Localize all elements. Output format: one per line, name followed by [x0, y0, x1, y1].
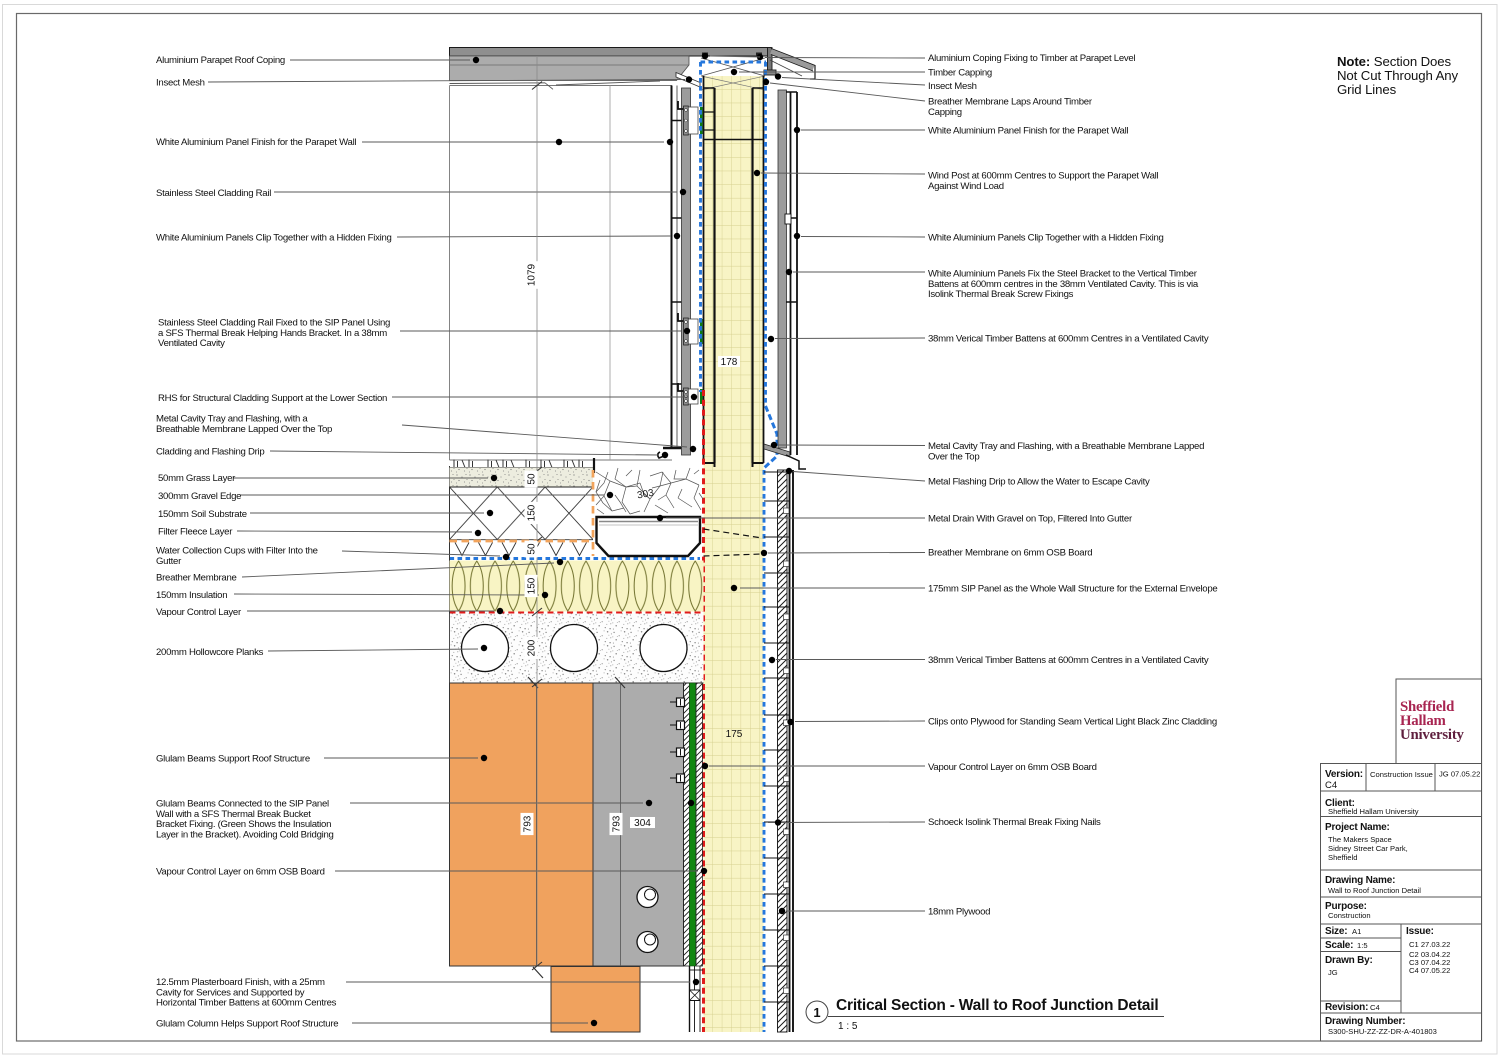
svg-text:38mm Verical Timber Battens at: 38mm Verical Timber Battens at 600mm Cen… [928, 655, 1209, 666]
svg-text:175mm SIP Panel as the Whole W: 175mm SIP Panel as the Whole Wall Struct… [928, 584, 1217, 595]
svg-text:304: 304 [634, 818, 651, 829]
svg-text:1: 1 [813, 1005, 820, 1020]
svg-text:150mm Insulation: 150mm Insulation [156, 590, 227, 601]
svg-text:Metal Drain With Gravel on Top: Metal Drain With Gravel on Top, Filtered… [928, 514, 1133, 525]
svg-text:Capping: Capping [928, 107, 962, 118]
svg-text:Over the Top: Over the Top [928, 451, 979, 462]
svg-text:793: 793 [523, 815, 534, 832]
svg-text:Not Cut Through Any: Not Cut Through Any [1337, 68, 1459, 83]
svg-text:White Aluminium Panel Finish f: White Aluminium Panel Finish for the Par… [928, 126, 1128, 137]
svg-text:C4: C4 [1370, 1003, 1380, 1012]
svg-text:Ventilated Cavity: Ventilated Cavity [158, 338, 225, 349]
svg-text:University: University [1400, 727, 1465, 743]
svg-text:C1 27.03.22: C1 27.03.22 [1409, 940, 1450, 949]
svg-text:1:5: 1:5 [1357, 941, 1368, 950]
svg-text:Construction Issue: Construction Issue [1370, 770, 1433, 779]
svg-text:Breather Membrane on 6mm OSB B: Breather Membrane on 6mm OSB Board [928, 548, 1092, 559]
svg-text:Wall to Roof Junction Detail: Wall to Roof Junction Detail [1328, 886, 1421, 895]
svg-text:Version:: Version: [1325, 769, 1363, 780]
svg-text:Grid Lines: Grid Lines [1337, 82, 1397, 97]
svg-text:Insect Mesh: Insect Mesh [156, 78, 205, 89]
svg-text:Vapour Control Layer: Vapour Control Layer [156, 607, 242, 618]
svg-text:793: 793 [612, 815, 623, 832]
svg-text:Aluminium Parapet Roof Coping: Aluminium Parapet Roof Coping [156, 55, 285, 66]
svg-text:A1: A1 [1352, 927, 1361, 936]
svg-text:Sidney Street Car Park,: Sidney Street Car Park, [1328, 844, 1408, 853]
svg-text:Stainless Steel Cladding Rail: Stainless Steel Cladding Rail [156, 188, 271, 199]
svg-text:Issue:: Issue: [1406, 926, 1434, 937]
svg-text:Schoeck Isolink Thermal Break: Schoeck Isolink Thermal Break Fixing Nai… [928, 817, 1101, 828]
svg-text:Filter Fleece Layer: Filter Fleece Layer [158, 527, 233, 538]
svg-text:50: 50 [527, 473, 538, 485]
svg-text:Glulam Column Helps Support Ro: Glulam Column Helps Support Roof Structu… [156, 1019, 338, 1030]
svg-text:Isolink Thermal Break Screw Fi: Isolink Thermal Break Screw Fixings [928, 289, 1074, 300]
svg-text:Glulam Beams Support Roof Stru: Glulam Beams Support Roof Structure [156, 754, 310, 765]
svg-text:300mm Gravel Edge: 300mm Gravel Edge [158, 491, 241, 502]
svg-text:C4 07.05.22: C4 07.05.22 [1409, 966, 1450, 975]
svg-text:38mm Verical Timber Battens at: 38mm Verical Timber Battens at 600mm Cen… [928, 334, 1209, 345]
svg-text:50: 50 [527, 543, 538, 555]
svg-text:Vapour Control Layer on 6mm OS: Vapour Control Layer on 6mm OSB Board [156, 867, 325, 878]
svg-text:Project Name:: Project Name: [1325, 822, 1390, 833]
svg-text:Drawing Number:: Drawing Number: [1325, 1016, 1405, 1027]
svg-text:175: 175 [726, 729, 743, 740]
svg-text:1 : 5: 1 : 5 [838, 1021, 858, 1032]
svg-text:Breather Membrane: Breather Membrane [156, 573, 237, 584]
svg-text:Breathable Membrane Lapped Ove: Breathable Membrane Lapped Over the Top [156, 424, 332, 435]
svg-text:White Aluminium Panel Finish f: White Aluminium Panel Finish for the Par… [156, 137, 356, 148]
svg-text:Sheffield Hallam University: Sheffield Hallam University [1328, 807, 1419, 816]
svg-text:Note: Section Does: Note: Section Does [1337, 54, 1452, 69]
svg-text:Vapour Control Layer on 6mm OS: Vapour Control Layer on 6mm OSB Board [928, 762, 1097, 773]
svg-text:18mm Plywood: 18mm Plywood [928, 907, 990, 918]
svg-text:150: 150 [527, 577, 538, 594]
svg-text:JG: JG [1328, 968, 1338, 977]
svg-text:White Aluminium Panels Clip To: White Aluminium Panels Clip Together wit… [156, 233, 392, 244]
svg-text:Aluminium Coping Fixing to Tim: Aluminium Coping Fixing to Timber at Par… [928, 53, 1135, 64]
svg-text:Insect Mesh: Insect Mesh [928, 81, 977, 92]
svg-text:C4: C4 [1325, 780, 1337, 791]
svg-text:Gutter: Gutter [156, 556, 182, 567]
svg-text:The Makers Space: The Makers Space [1328, 835, 1392, 844]
svg-text:1079: 1079 [527, 263, 538, 286]
svg-text:White Aluminium Panels Clip To: White Aluminium Panels Clip Together wit… [928, 233, 1164, 244]
svg-text:Size:: Size: [1325, 926, 1347, 937]
svg-text:200: 200 [527, 639, 538, 656]
svg-text:Against Wind Load: Against Wind Load [928, 181, 1004, 192]
svg-text:200mm Hollowcore Planks: 200mm Hollowcore Planks [156, 647, 264, 658]
svg-text:Scale:: Scale: [1325, 940, 1353, 951]
svg-text:S300-SHU-ZZ-ZZ-DR-A-401803: S300-SHU-ZZ-ZZ-DR-A-401803 [1328, 1027, 1437, 1036]
svg-text:Timber Capping: Timber Capping [928, 68, 992, 79]
svg-text:178: 178 [721, 357, 738, 368]
svg-text:Clips onto Plywood for Standin: Clips onto Plywood for Standing Seam Ver… [928, 717, 1217, 728]
svg-text:Drawn By:: Drawn By: [1325, 955, 1373, 966]
svg-text:150: 150 [527, 504, 538, 521]
svg-text:Critical Section - Wall to Roo: Critical Section - Wall to Roof Junction… [836, 997, 1158, 1014]
svg-text:Sheffield: Sheffield [1328, 853, 1357, 862]
svg-text:50mm Grass Layer: 50mm Grass Layer [158, 473, 236, 484]
svg-text:Layer in the Bracket). Avoidin: Layer in the Bracket). Avoiding Cold Bri… [156, 829, 334, 840]
svg-text:Metal Flashing Drip to Allow t: Metal Flashing Drip to Allow the Water t… [928, 477, 1150, 488]
svg-text:Construction: Construction [1328, 911, 1371, 920]
svg-text:RHS for Structural Cladding Su: RHS for Structural Cladding Support at t… [158, 393, 387, 404]
svg-text:Cladding and Flashing Drip: Cladding and Flashing Drip [156, 447, 264, 458]
svg-text:Revision:: Revision: [1325, 1002, 1368, 1013]
svg-text:150mm Soil Substrate: 150mm Soil Substrate [158, 509, 247, 520]
svg-text:Drawing Name:: Drawing Name: [1325, 875, 1395, 886]
svg-text:JG 07.05.22: JG 07.05.22 [1439, 770, 1480, 779]
svg-text:Horizontal Timber Battens at 6: Horizontal Timber Battens at 600mm Centr… [156, 998, 337, 1009]
